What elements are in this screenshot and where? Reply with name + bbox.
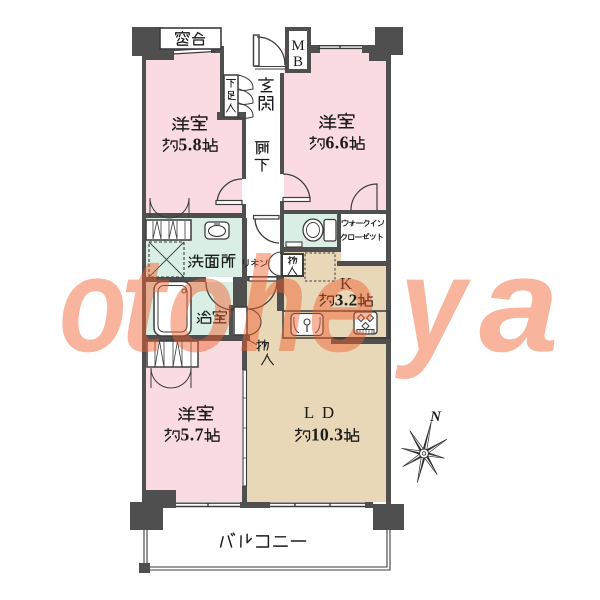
svg-text:5: 5 [178, 135, 187, 155]
svg-text:6: 6 [340, 133, 349, 153]
svg-text:5: 5 [180, 425, 189, 445]
svg-text:2: 2 [349, 290, 358, 309]
svg-text:1: 1 [311, 425, 320, 445]
svg-text:3: 3 [335, 290, 344, 309]
svg-text:.: . [190, 425, 194, 445]
svg-text:6: 6 [325, 133, 334, 153]
svg-text:L D: L D [304, 403, 336, 422]
svg-text:7: 7 [195, 425, 204, 445]
svg-text:B: B [293, 54, 303, 70]
svg-text:.: . [188, 135, 192, 155]
svg-text:.: . [335, 133, 339, 153]
svg-text:N: N [429, 409, 442, 425]
svg-text:.: . [344, 290, 348, 309]
svg-text:.: . [329, 425, 333, 445]
svg-text:M: M [291, 38, 304, 54]
svg-text:0: 0 [320, 425, 329, 445]
svg-text:3: 3 [334, 425, 343, 445]
svg-text:8: 8 [193, 135, 202, 155]
